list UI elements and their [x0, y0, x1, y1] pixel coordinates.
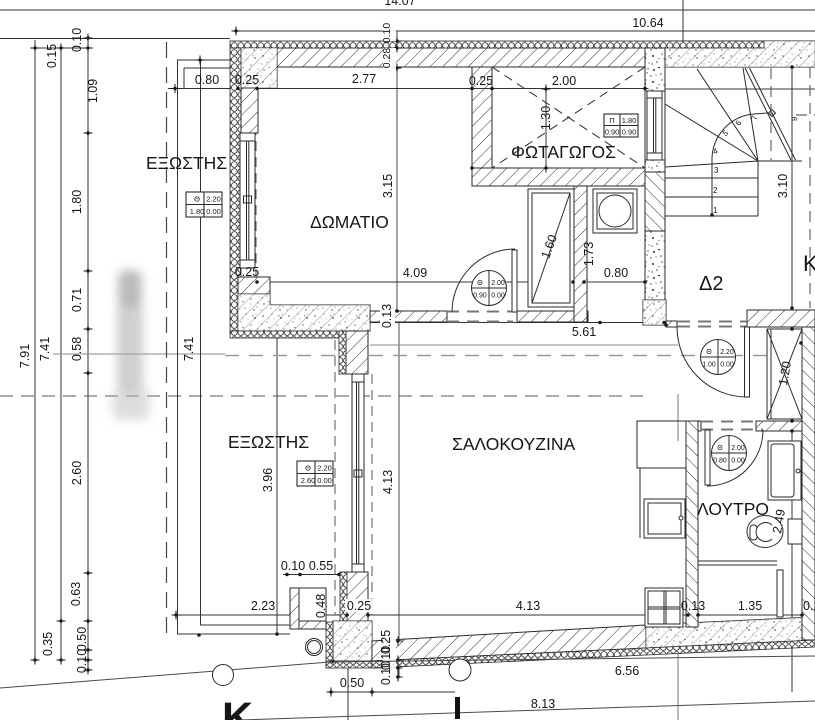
svg-text:Π: Π [609, 116, 614, 125]
svg-text:2.00: 2.00 [491, 280, 505, 287]
svg-text:1.80: 1.80 [622, 116, 637, 125]
svg-text:7: 7 [750, 114, 760, 121]
svg-text:0.10: 0.10 [379, 661, 393, 685]
svg-text:Θ: Θ [305, 464, 311, 473]
svg-text:3.96: 3.96 [261, 468, 275, 492]
svg-text:2.60: 2.60 [301, 476, 316, 485]
svg-text:0.90: 0.90 [473, 293, 487, 300]
svg-text:1.30: 1.30 [539, 106, 553, 130]
svg-text:3.15: 3.15 [381, 174, 395, 198]
svg-text:1.80: 1.80 [70, 190, 84, 214]
svg-text:ΣΑΛΟΚΟΥΖΙΝΑ: ΣΑΛΟΚΟΥΖΙΝΑ [452, 434, 575, 454]
svg-text:0.80: 0.80 [604, 266, 628, 280]
svg-text:1.09: 1.09 [86, 79, 100, 103]
svg-text:1.35: 1.35 [738, 599, 762, 613]
svg-text:7.41: 7.41 [182, 337, 196, 361]
svg-text:0.63: 0.63 [69, 582, 83, 606]
svg-text:0.13: 0.13 [380, 304, 394, 328]
svg-text:0.00: 0.00 [720, 362, 734, 369]
svg-text:14.07: 14.07 [384, 0, 415, 8]
svg-text:Θ: Θ [706, 349, 712, 356]
svg-text:0.90: 0.90 [605, 128, 620, 137]
svg-text:0.71: 0.71 [70, 288, 84, 312]
svg-text:0.25: 0.25 [235, 73, 259, 87]
svg-text:0.00: 0.00 [731, 458, 745, 465]
svg-text:2.77: 2.77 [352, 72, 376, 86]
svg-text:2.23: 2.23 [251, 599, 275, 613]
svg-text:0.25: 0.25 [469, 74, 493, 88]
svg-text:9: 9 [790, 115, 800, 121]
svg-text:4.09: 4.09 [403, 266, 427, 280]
svg-text:5.61: 5.61 [572, 325, 596, 339]
svg-text:4.13: 4.13 [516, 599, 540, 613]
svg-text:7.91: 7.91 [18, 344, 32, 368]
svg-text:0.25: 0.25 [235, 265, 259, 279]
svg-text:0.00: 0.00 [491, 293, 505, 300]
svg-text:3: 3 [714, 166, 719, 175]
svg-text:Θ: Θ [194, 195, 200, 204]
svg-text:0.28: 0.28 [381, 48, 393, 69]
svg-text:0.10: 0.10 [75, 649, 89, 673]
svg-text:0.13: 0.13 [681, 599, 705, 613]
svg-text:5: 5 [721, 128, 730, 138]
svg-text:0.50: 0.50 [340, 676, 364, 690]
svg-text:0.00: 0.00 [317, 476, 332, 485]
svg-text:8.13: 8.13 [531, 697, 555, 711]
svg-text:2.49: 2.49 [770, 508, 788, 534]
svg-text:1.80: 1.80 [190, 207, 205, 216]
svg-text:0.35: 0.35 [41, 632, 55, 656]
svg-text:ΛΟΥΤΡΟ: ΛΟΥΤΡΟ [697, 499, 769, 519]
svg-text:0.90: 0.90 [622, 128, 637, 137]
svg-text:0.80: 0.80 [713, 458, 727, 465]
svg-text:ΔΩΜΑΤΙΟ: ΔΩΜΑΤΙΟ [310, 212, 389, 232]
svg-text:1.00: 1.00 [702, 362, 716, 369]
svg-text:0.80: 0.80 [195, 73, 219, 87]
svg-text:0.10: 0.10 [381, 23, 393, 44]
svg-text:4: 4 [712, 146, 720, 156]
svg-text:10.64: 10.64 [632, 16, 663, 30]
svg-text:ΕΞΩΣΤΗΣ: ΕΞΩΣΤΗΣ [228, 432, 309, 452]
svg-text:7.41: 7.41 [38, 337, 52, 361]
svg-text:2.20: 2.20 [720, 349, 734, 356]
svg-text:0.48: 0.48 [314, 594, 328, 618]
svg-text:0.25: 0.25 [803, 599, 815, 613]
svg-text:2.20: 2.20 [317, 464, 332, 473]
svg-text:2.60: 2.60 [70, 461, 84, 485]
svg-text:ΦΩΤΑΓΩΓΟΣ: ΦΩΤΑΓΩΓΟΣ [511, 142, 616, 162]
svg-text:1.73: 1.73 [582, 242, 596, 266]
svg-text:0.15: 0.15 [45, 44, 59, 68]
svg-text:3.10: 3.10 [776, 174, 790, 198]
svg-text:2.00: 2.00 [552, 74, 576, 88]
svg-text:K: K [803, 251, 815, 276]
svg-text:4.13: 4.13 [381, 470, 395, 494]
svg-text:2: 2 [713, 186, 718, 195]
svg-text:0.50: 0.50 [75, 627, 89, 651]
svg-text:Θ: Θ [717, 445, 723, 452]
svg-text:6.56: 6.56 [615, 664, 639, 678]
svg-text:1: 1 [713, 206, 718, 215]
svg-text:ΕΞΩΣΤΗΣ: ΕΞΩΣΤΗΣ [146, 153, 227, 173]
svg-text:0.10: 0.10 [70, 28, 84, 52]
svg-text:0.00: 0.00 [206, 207, 221, 216]
svg-text:Κ: Κ [222, 694, 253, 720]
svg-text:0.55: 0.55 [309, 559, 333, 573]
svg-text:0.58: 0.58 [70, 337, 84, 361]
svg-text:0.10: 0.10 [281, 559, 305, 573]
svg-text:2.00: 2.00 [731, 445, 745, 452]
svg-text:0.25: 0.25 [347, 599, 371, 613]
svg-text:2.20: 2.20 [206, 195, 221, 204]
svg-text:Δ2: Δ2 [699, 273, 723, 295]
svg-text:Θ: Θ [477, 280, 483, 287]
